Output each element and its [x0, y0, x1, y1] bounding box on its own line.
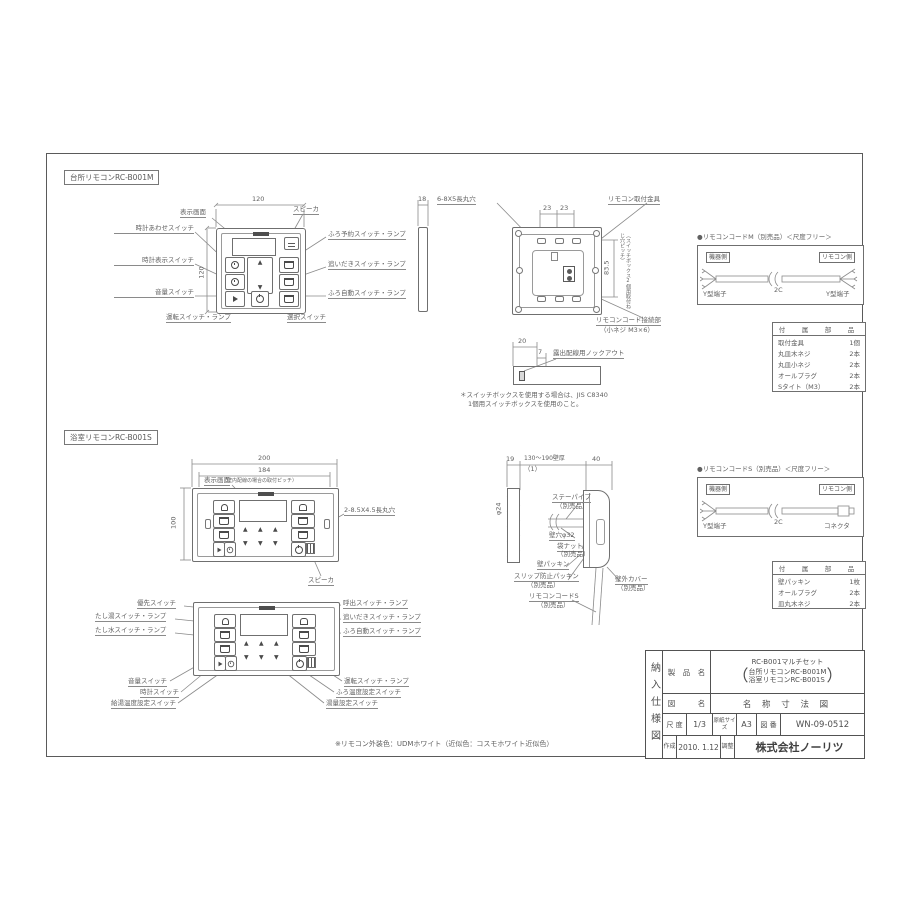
label-volume-switch: 音量スイッチ — [114, 289, 194, 298]
speaker-grille-icon — [288, 241, 295, 247]
label-amount-switch: 湯量設定スイッチ — [326, 700, 378, 709]
bath-reheat-button — [292, 628, 316, 642]
back-inner-recess — [532, 250, 584, 296]
arrow-down-icon: ▼ — [273, 541, 278, 547]
side-dim-19: 19 — [506, 456, 514, 463]
bath-operation-button — [292, 656, 307, 671]
bath-arrow-rows: ▲ ▲ ▲ ▼ ▼ ▼ — [240, 639, 286, 669]
parts-table-s: 付 属 部 品 壁パッキン1枚 オールプラグ2本 皿丸木ネジ2本 — [772, 561, 866, 609]
label-reheat-switch: 追いだきスイッチ・ランプ — [328, 261, 406, 270]
label-bath-auto-switch: ふろ自動スイッチ・ランプ — [343, 628, 421, 637]
add-cold-icon — [220, 645, 230, 653]
back-dim-835: 83.5 — [603, 257, 610, 279]
back-dim-23b: 23 — [560, 205, 568, 212]
kitchen-clock-set-button — [225, 257, 245, 273]
bath-label-speaker: スピーカ — [308, 577, 334, 586]
paper-size-value: A3 — [737, 714, 757, 735]
terminal-screw — [567, 276, 572, 281]
bath-operation-button — [291, 542, 306, 557]
drawing-name-value: 名 称 寸 法 図 — [711, 694, 864, 713]
label-wall-hole: 壁穴φ32 — [549, 532, 575, 541]
add-cold-icon — [219, 531, 229, 539]
reheat-icon — [298, 517, 308, 525]
wall-section — [507, 488, 520, 563]
label-mounting-bracket: リモコン取付金具 — [608, 196, 660, 205]
side-dia-24: φ24 — [495, 500, 502, 518]
product-set-name: RC-B001マルチセット — [752, 658, 824, 667]
part-qty: 2本 — [849, 598, 860, 608]
label-bath-operation-switch: 運転スイッチ・ランプ — [344, 678, 409, 687]
product-name-row: 製 品 名 RC-B001マルチセット （ 台所リモコンRC-B001M 浴室リ… — [663, 651, 864, 693]
label-call-switch: 呼出スイッチ・ランプ — [343, 600, 408, 609]
label-bath-reserve-switch: ふろ予約スイッチ・ランプ — [328, 231, 406, 240]
part-name: 皿丸木ネジ — [778, 598, 811, 608]
clock-icon — [228, 660, 234, 666]
bath-reserve-icon — [284, 261, 294, 269]
back-side-screw — [516, 267, 523, 274]
parts-row: 壁パッキン1枚 — [773, 575, 865, 586]
kitchen-reheat-button — [279, 274, 299, 290]
cord-s-remote-side: リモコン側 — [819, 484, 855, 495]
part-name: オールプラグ — [778, 370, 817, 380]
bath-remote-callout-view: ▲ ▲ ▲ ▼ ▼ ▼ — [193, 602, 340, 676]
label-bath-temp-switch: ふろ温度設定スイッチ — [336, 689, 401, 698]
bath-priority-button — [213, 500, 235, 514]
bath-call-button — [292, 614, 316, 628]
part-name: 丸皿小ネジ — [778, 359, 811, 369]
back-oblong-hole — [572, 238, 581, 244]
arrow-up-icon: ▲ — [259, 641, 264, 647]
clock-set-icon — [231, 261, 239, 269]
kitchen-dim-width: 120 — [252, 196, 264, 203]
bath-add-cold-button — [214, 642, 236, 656]
cord-m-equipment-side: 機器側 — [706, 252, 730, 263]
label-back-oblong-holes: 6-8X5長丸穴 — [437, 196, 476, 205]
bath-add-cold-button — [213, 528, 235, 542]
back-oblong-hole — [537, 296, 546, 302]
noritz-logo — [258, 492, 274, 496]
clock-icon — [227, 546, 233, 552]
reheat-icon — [299, 631, 309, 639]
kitchen-volume-button — [225, 291, 245, 307]
arrow-down-icon: ▼ — [243, 541, 248, 547]
noritz-logo — [259, 606, 275, 610]
part-qty: 2本 — [849, 370, 860, 380]
reheat-icon — [284, 278, 294, 286]
parts-row: 皿丸木ネジ2本 — [773, 597, 865, 608]
created-label: 作成 — [663, 736, 677, 758]
knockout-dim-7: 7 — [538, 349, 542, 356]
cord-m-title: ●リモコンコードM（別売品）＜尺度フリー＞ — [697, 234, 832, 241]
parts-s-header: 付 属 部 品 — [773, 562, 865, 575]
parts-row: 丸皿木ネジ2本 — [773, 347, 865, 358]
part-qty: 2本 — [849, 587, 860, 597]
arrow-up-icon: ▲ — [274, 641, 279, 647]
label-knockout: 露出配線用ノックアウト — [553, 350, 624, 359]
drawing-name-label: 図 名 — [663, 694, 711, 713]
bath-display — [240, 614, 288, 636]
bath-reheat-button — [291, 514, 315, 528]
label-stay-pipe-2: （別売品） — [556, 503, 589, 510]
jis-note-line1: ＊スイッチボックスを使用する場合は、JIS C8340 — [460, 392, 608, 399]
label-clock-set-switch: 時計あわせスイッチ — [114, 225, 194, 234]
bath-label-holes: 2-8.5X4.5長丸穴 — [344, 507, 395, 516]
bath-auto-button — [291, 528, 315, 542]
bath-speaker-grille — [306, 543, 315, 554]
bath-mount-hole — [205, 519, 211, 529]
titleblock-side-label: 納入仕様図 — [646, 651, 663, 758]
terminal-screw — [567, 269, 572, 274]
cord-s-right-terminal: コネクタ — [824, 523, 850, 530]
label-dhw-temp-switch: 給湯温度設定スイッチ — [111, 700, 176, 709]
drawing-no-value: WN-09-0512 — [781, 714, 864, 735]
label-cord-s-2: （別売品） — [537, 602, 570, 609]
bath-arrow-rows: ▲ ▲ ▲ ▼ ▼ ▼ — [239, 525, 285, 555]
bath-display — [239, 500, 287, 522]
bath-auto-icon — [298, 531, 308, 539]
bath-auto-icon — [284, 295, 294, 303]
label-priority-switch: 優先スイッチ — [137, 600, 176, 609]
parts-row: オールプラグ2本 — [773, 586, 865, 597]
exterior-color-note: ※リモコン外装色：UDMホワイト（近似色：コスモホワイト近似色） — [335, 740, 553, 748]
part-name: 取付金具 — [778, 337, 804, 347]
label-add-hot-switch: たし湯スイッチ・ランプ — [95, 613, 166, 622]
cord-cover — [596, 519, 605, 545]
label-outdoor-cover-2: （別売品） — [617, 585, 650, 592]
arrow-down-icon: ▼ — [274, 655, 279, 661]
kitchen-operation-button — [251, 291, 269, 307]
kitchen-dim-depth: 18 — [418, 196, 426, 203]
back-oblong-hole — [555, 296, 564, 302]
arrow-up-icon: ▲ — [273, 527, 278, 533]
arrow-down-icon: ▼ — [258, 541, 263, 547]
cord-m-remote-side: リモコン側 — [819, 252, 855, 263]
back-center-hole — [551, 252, 558, 261]
bath-clock-button — [225, 656, 237, 671]
label-bath-clock-switch: 時計スイッチ — [140, 689, 179, 698]
part-qty: 2本 — [849, 359, 860, 369]
part-qty: 1個 — [849, 337, 860, 347]
label-display-screen: 表示画面 — [180, 209, 206, 218]
side-dim-40: 40 — [592, 456, 600, 463]
paper-size-label: 原紙サイズ — [713, 714, 737, 735]
kitchen-remote-front-view: ▲ ▼ — [216, 228, 306, 314]
part-name: Sタイト（M3） — [778, 381, 824, 391]
product-bath: 浴室リモコンRC-B001S — [749, 676, 825, 685]
cord-s-equipment-side: 機器側 — [706, 484, 730, 495]
label-wall-packing: 壁パッキン — [537, 561, 569, 570]
kitchen-section-title: 台所リモコンRC-B001M — [64, 170, 159, 185]
arrow-up-icon: ▲ — [258, 527, 263, 533]
created-row: 作成 2010. 1.12 調整 株式会社ノーリツ — [663, 735, 864, 758]
arrow-up-icon: ▲ — [243, 527, 248, 533]
bath-label-display: 表示画面 — [204, 477, 230, 486]
add-hot-icon — [220, 631, 230, 639]
label-add-cold-switch: たし水スイッチ・ランプ — [95, 627, 166, 636]
kitchen-remote-side-view — [418, 227, 428, 312]
cord-m-core-count: 2C — [774, 287, 783, 294]
parts-row: オールプラグ2本 — [773, 369, 865, 380]
back-oblong-hole — [572, 296, 581, 302]
scale-label: 尺 度 — [663, 714, 687, 735]
bath-section-title: 浴室リモコンRC-B001S — [64, 430, 158, 445]
noritz-logo — [253, 232, 269, 236]
label-bath-volume-switch: 音量スイッチ — [128, 678, 167, 687]
call-icon — [300, 618, 308, 625]
bath-speaker-grille — [307, 657, 316, 668]
cord-s-left-terminal: Y型端子 — [703, 523, 726, 530]
volume-icon — [233, 296, 238, 302]
side-dim-wall: 130〜190壁厚 — [524, 456, 565, 463]
knockout-mark — [519, 371, 525, 381]
label-clock-display-switch: 時計表示スイッチ — [114, 257, 194, 266]
power-icon — [295, 546, 303, 554]
label-operation-switch: 運転スイッチ・ランプ — [166, 314, 231, 323]
back-side-screw — [592, 267, 599, 274]
titleblock-main: 製 品 名 RC-B001マルチセット （ 台所リモコンRC-B001M 浴室リ… — [663, 651, 864, 758]
bath-remote-front-view: ▲ ▲ ▲ ▼ ▼ ▼ — [192, 488, 339, 562]
jis-note-line2: 1個用スイッチボックスを使用のこと。 — [468, 401, 582, 408]
kitchen-display — [232, 238, 276, 256]
company-logo-text: 株式会社ノーリツ — [735, 736, 864, 758]
back-corner-screw — [593, 230, 600, 237]
paren-close: ） — [826, 666, 842, 686]
back-oblong-hole — [537, 238, 546, 244]
cord-terminal-block — [563, 266, 575, 282]
parts-m-header: 付 属 部 品 — [773, 323, 865, 336]
label-slip-packing-2: （別売品） — [527, 582, 560, 589]
bath-call-button — [291, 500, 315, 514]
part-name: 壁パッキン — [778, 576, 810, 586]
bath-auto-button — [292, 642, 316, 656]
bath-priority-button — [214, 614, 236, 628]
title-block: 納入仕様図 製 品 名 RC-B001マルチセット （ 台所リモコンRC-B00… — [645, 650, 865, 759]
cord-m-right-terminal: Y型端子 — [826, 291, 849, 298]
part-qty: 1枚 — [849, 576, 860, 586]
bath-mount-hole — [324, 519, 330, 529]
power-icon — [296, 660, 304, 668]
back-dim-23a: 23 — [543, 205, 551, 212]
label-speaker: スピーカ — [293, 206, 319, 215]
kitchen-clock-display-button — [225, 274, 245, 290]
cord-m-box: 機器側 リモコン側 Y型端子 2C Y型端子 — [697, 245, 864, 305]
kitchen-speaker-button — [284, 237, 299, 250]
bath-clock-button — [224, 542, 236, 557]
part-name: 丸皿木ネジ — [778, 348, 811, 358]
product-name-value: RC-B001マルチセット （ 台所リモコンRC-B001M 浴室リモコンRC-… — [711, 651, 864, 693]
part-qty: 2本 — [849, 348, 860, 358]
kitchen-remote-back-view — [512, 227, 602, 315]
product-name-label: 製 品 名 — [663, 651, 711, 693]
add-hot-icon — [219, 517, 229, 525]
kitchen-bath-auto-button — [279, 291, 299, 307]
priority-icon — [221, 504, 228, 511]
parts-table-m: 付 属 部 品 取付金具1個 丸皿木ネジ2本 丸皿小ネジ2本 オールプラグ2本 … — [772, 322, 866, 392]
drawing-page: 台所リモコンRC-B001M 120 120 18 ▲ ▼ 表示画面 スピーカ … — [0, 0, 900, 900]
dimension-and-leader-lines — [0, 0, 900, 900]
power-icon — [256, 295, 264, 303]
kitchen-select-updown: ▲ ▼ — [247, 257, 273, 294]
paren-open: （ — [733, 666, 749, 686]
label-cap-nut-2: （別売品） — [557, 551, 590, 558]
back-oblong-hole — [555, 238, 564, 244]
back-corner-screw — [593, 306, 600, 313]
priority-icon — [222, 618, 229, 625]
scale-value: 1/3 — [687, 714, 713, 735]
cord-m-left-terminal: Y型端子 — [703, 291, 726, 298]
parts-row: 丸皿小ネジ2本 — [773, 358, 865, 369]
bath-auto-icon — [299, 645, 309, 653]
part-qty: 2本 — [849, 381, 860, 391]
adjusted-label: 調整 — [721, 736, 735, 758]
parts-row: 取付金具1個 — [773, 336, 865, 347]
label-select-switch: 選択スイッチ — [287, 314, 326, 323]
bath-dim-100: 100 — [170, 513, 177, 533]
arrow-down-icon: ▼ — [244, 655, 249, 661]
side-note-1: （1） — [524, 466, 541, 473]
kitchen-dim-height: 120 — [198, 259, 205, 279]
label-cord-screw: （小ネジ M3×6） — [600, 327, 654, 334]
back-corner-screw — [515, 230, 522, 237]
arrow-down-icon: ▼ — [259, 655, 264, 661]
parts-row: Sタイト（M3）2本 — [773, 380, 865, 391]
back-corner-screw — [515, 306, 522, 313]
label-bath-reheat-switch: 追いだきスイッチ・ランプ — [343, 614, 421, 623]
part-name: オールプラグ — [778, 587, 817, 597]
arrow-up-icon: ▲ — [244, 641, 249, 647]
cord-s-core-count: 2C — [774, 519, 783, 526]
volume-icon — [217, 547, 221, 552]
knockout-dim-20: 20 — [518, 338, 526, 345]
label-cord-connection: リモコンコード接続部 — [596, 317, 661, 326]
drawing-no-label: 図 番 — [757, 714, 781, 735]
call-icon — [299, 504, 307, 511]
kitchen-bath-reserve-button — [279, 257, 299, 273]
cord-s-box: 機器側 リモコン側 Y型端子 2C コネクタ — [697, 477, 864, 537]
bath-dim-200: 200 — [258, 455, 270, 462]
arrow-up-icon: ▲ — [258, 260, 263, 266]
knockout-detail-view — [513, 366, 601, 385]
clock-display-icon — [231, 278, 239, 286]
label-bath-auto-switch: ふろ自動スイッチ・ランプ — [328, 290, 406, 299]
drawing-name-row: 図 名 名 称 寸 法 図 — [663, 693, 864, 713]
cord-s-title: ●リモコンコードS（別売品）＜尺度フリー＞ — [697, 466, 830, 473]
created-date: 2010. 1.12 — [677, 736, 721, 758]
scale-row: 尺 度 1/3 原紙サイズ A3 図 番 WN-09-0512 — [663, 713, 864, 735]
bath-add-hot-button — [214, 628, 236, 642]
volume-icon — [218, 661, 222, 666]
bath-add-hot-button — [213, 514, 235, 528]
back-pitch-note: （スイッチボックス2個用取付ねじ穴ピッチ） — [619, 233, 631, 309]
bath-dim-184: 184 — [258, 467, 270, 474]
bath-pitch-note: （壁内配線の場合の取付ピッチ） — [222, 479, 297, 485]
